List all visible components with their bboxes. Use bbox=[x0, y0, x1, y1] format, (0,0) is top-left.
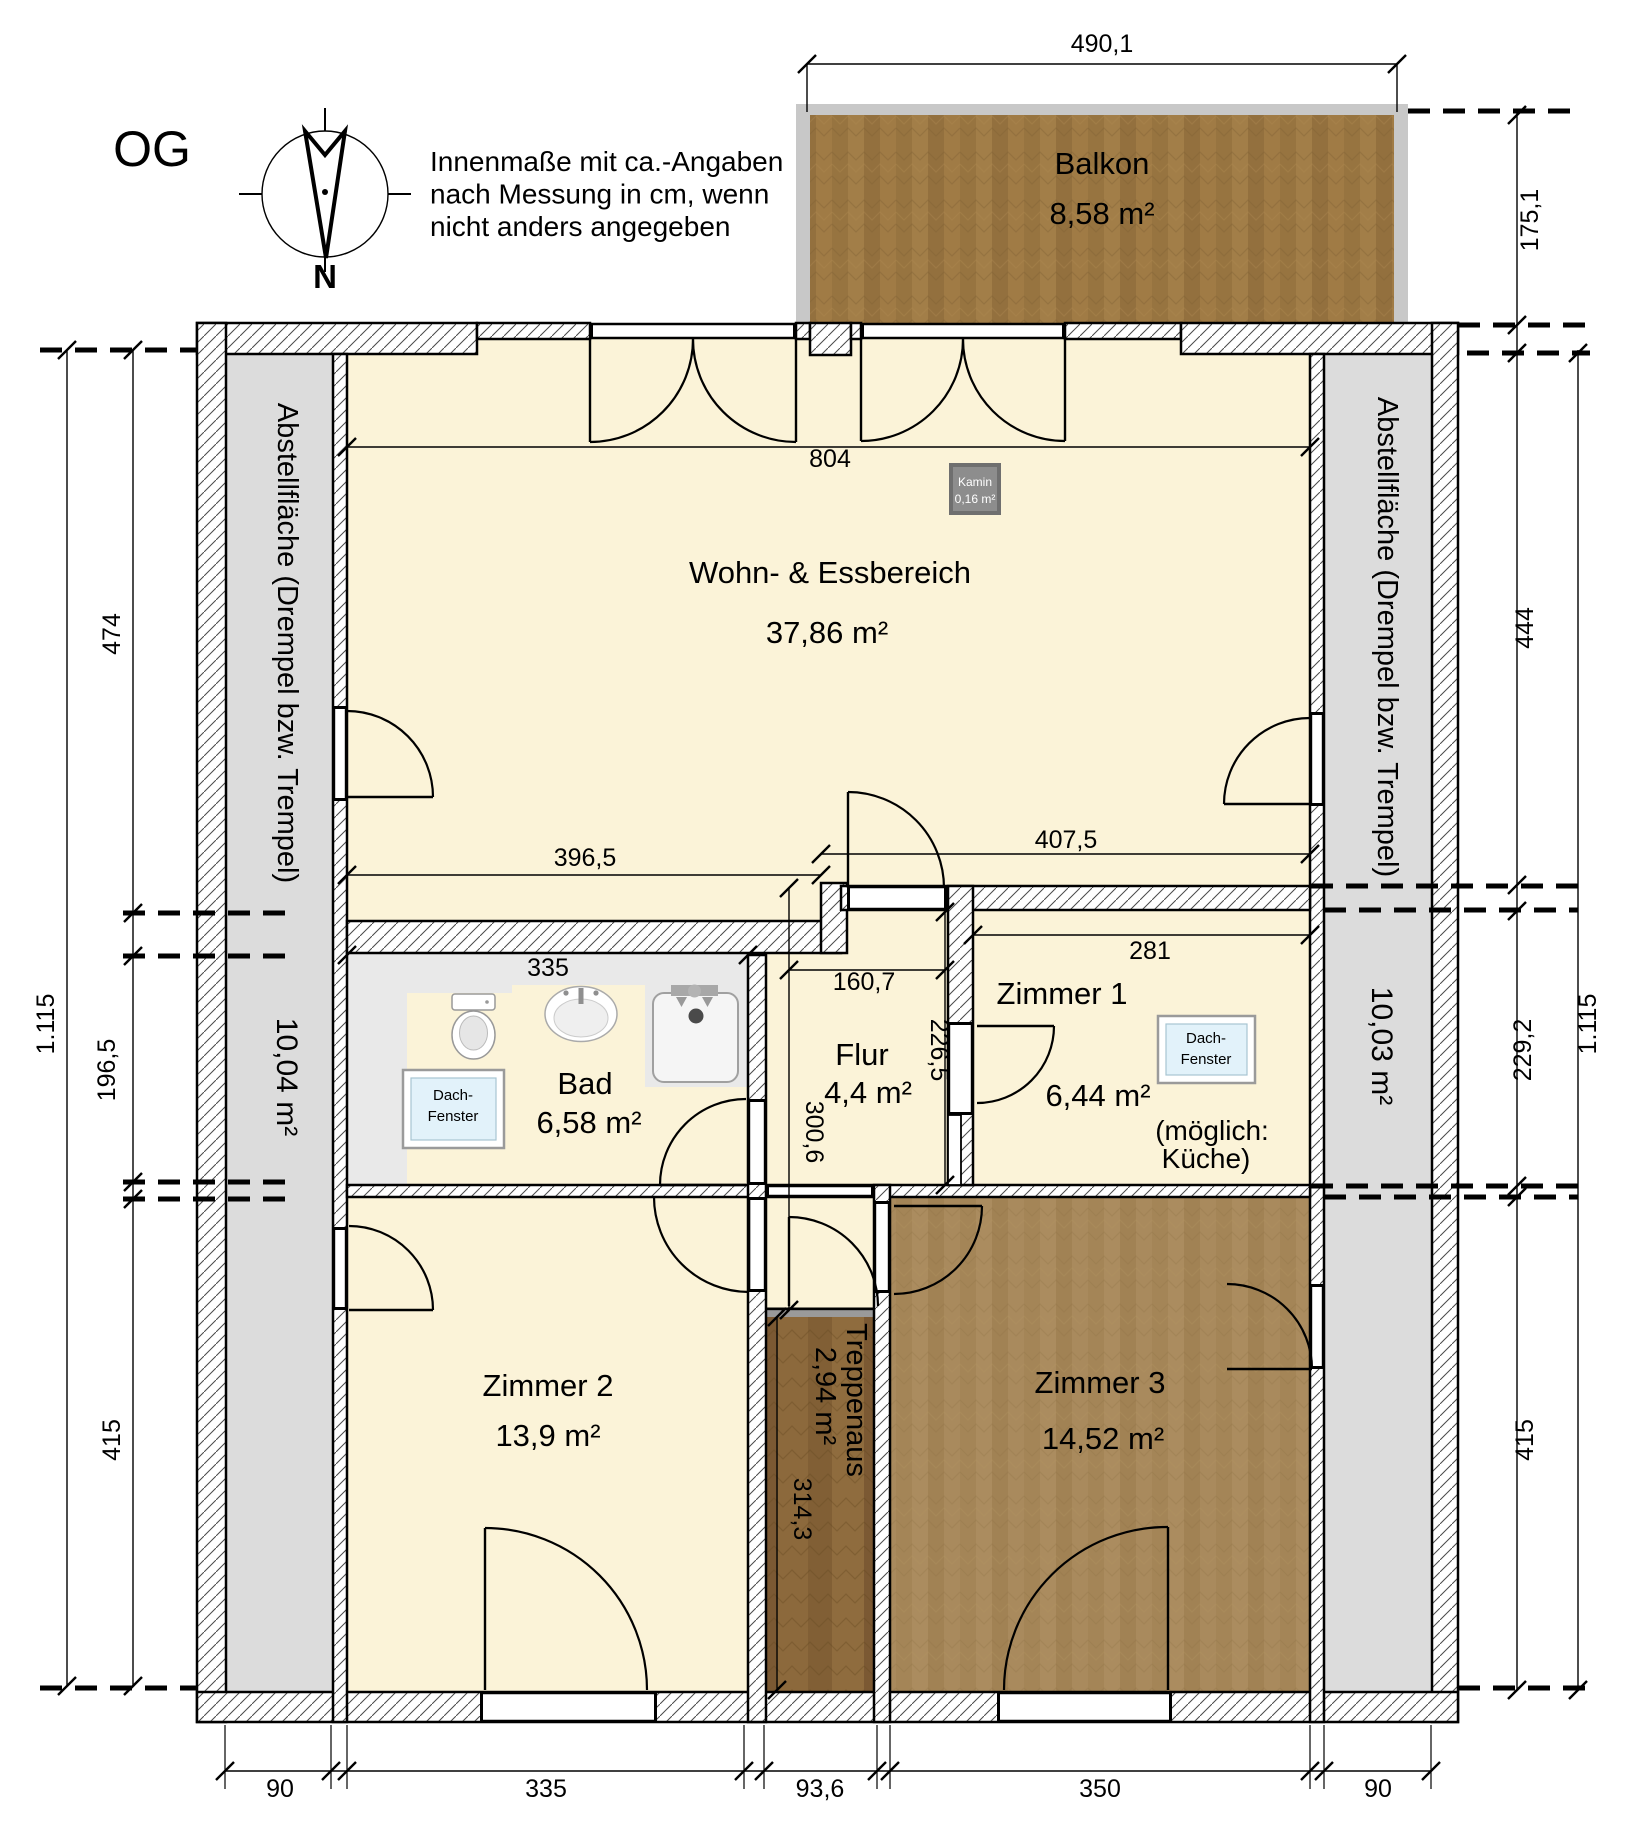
svg-text:93,6: 93,6 bbox=[796, 1775, 845, 1803]
svg-text:407,5: 407,5 bbox=[1035, 826, 1098, 854]
svg-text:229,2: 229,2 bbox=[1509, 1019, 1537, 1082]
svg-text:nach Messung in cm, wenn: nach Messung in cm, wenn bbox=[430, 179, 769, 210]
svg-text:415: 415 bbox=[1511, 1419, 1539, 1461]
svg-text:nicht anders angegeben: nicht anders angegeben bbox=[430, 211, 730, 242]
svg-text:Bad: Bad bbox=[557, 1066, 612, 1101]
svg-text:Kamin: Kamin bbox=[958, 475, 992, 489]
svg-text:Dach-: Dach- bbox=[1186, 1030, 1226, 1047]
svg-text:226,5: 226,5 bbox=[925, 1019, 953, 1082]
svg-text:4,4 m²: 4,4 m² bbox=[824, 1075, 912, 1110]
svg-text:Wohn- & Essbereich: Wohn- & Essbereich bbox=[689, 555, 971, 590]
svg-text:474: 474 bbox=[98, 613, 126, 655]
svg-text:Zimmer 2: Zimmer 2 bbox=[483, 1368, 614, 1403]
svg-text:300,6: 300,6 bbox=[800, 1101, 828, 1164]
svg-text:OG: OG bbox=[113, 121, 191, 177]
svg-text:415: 415 bbox=[98, 1419, 126, 1461]
svg-text:37,86 m²: 37,86 m² bbox=[766, 615, 888, 650]
svg-text:Balkon: Balkon bbox=[1055, 146, 1150, 181]
svg-text:Fenster: Fenster bbox=[428, 1108, 479, 1125]
svg-text:1.115: 1.115 bbox=[32, 994, 60, 1055]
svg-text:396,5: 396,5 bbox=[554, 844, 617, 872]
svg-text:350: 350 bbox=[1079, 1775, 1121, 1803]
svg-text:13,9 m²: 13,9 m² bbox=[495, 1418, 600, 1453]
svg-text:6,44 m²: 6,44 m² bbox=[1045, 1078, 1150, 1113]
svg-text:175,1: 175,1 bbox=[1516, 189, 1544, 252]
svg-text:Zimmer 1: Zimmer 1 bbox=[997, 976, 1128, 1011]
svg-text:Flur: Flur bbox=[835, 1037, 888, 1072]
svg-text:Treppenaus: Treppenaus bbox=[840, 1323, 872, 1477]
svg-text:Dach-: Dach- bbox=[433, 1087, 473, 1104]
svg-text:Abstellfläche (Drempel bzw. Tr: Abstellfläche (Drempel bzw. Trempel) bbox=[1371, 397, 1403, 877]
svg-text:8,58 m²: 8,58 m² bbox=[1049, 196, 1154, 231]
svg-text:444: 444 bbox=[1511, 607, 1539, 649]
svg-text:2,94 m²: 2,94 m² bbox=[809, 1347, 841, 1446]
svg-text:314,3: 314,3 bbox=[788, 1478, 816, 1541]
svg-text:10,03 m²: 10,03 m² bbox=[1365, 987, 1398, 1105]
svg-text:0,16 m²: 0,16 m² bbox=[955, 492, 996, 506]
svg-text:335: 335 bbox=[527, 954, 569, 982]
svg-text:Zimmer 3: Zimmer 3 bbox=[1035, 1365, 1166, 1400]
svg-text:Innenmaße mit ca.-Angaben: Innenmaße mit ca.-Angaben bbox=[430, 146, 783, 177]
svg-text:90: 90 bbox=[1364, 1775, 1392, 1803]
svg-text:1.115: 1.115 bbox=[1574, 994, 1602, 1055]
svg-text:196,5: 196,5 bbox=[93, 1039, 121, 1102]
svg-text:804: 804 bbox=[809, 445, 851, 473]
svg-text:Küche): Küche) bbox=[1162, 1143, 1251, 1174]
svg-text:14,52 m²: 14,52 m² bbox=[1042, 1421, 1164, 1456]
svg-text:6,58 m²: 6,58 m² bbox=[536, 1105, 641, 1140]
svg-text:N: N bbox=[313, 258, 337, 295]
svg-text:10,04 m²: 10,04 m² bbox=[270, 1018, 303, 1136]
svg-text:Abstellfläche (Drempel bzw. Tr: Abstellfläche (Drempel bzw. Trempel) bbox=[271, 403, 303, 883]
svg-text:Fenster: Fenster bbox=[1181, 1051, 1232, 1068]
svg-text:490,1: 490,1 bbox=[1071, 30, 1134, 58]
svg-text:90: 90 bbox=[266, 1775, 294, 1803]
svg-text:335: 335 bbox=[525, 1775, 567, 1803]
svg-text:160,7: 160,7 bbox=[833, 968, 896, 996]
svg-text:281: 281 bbox=[1129, 937, 1171, 965]
svg-text:(möglich:: (möglich: bbox=[1155, 1115, 1269, 1146]
